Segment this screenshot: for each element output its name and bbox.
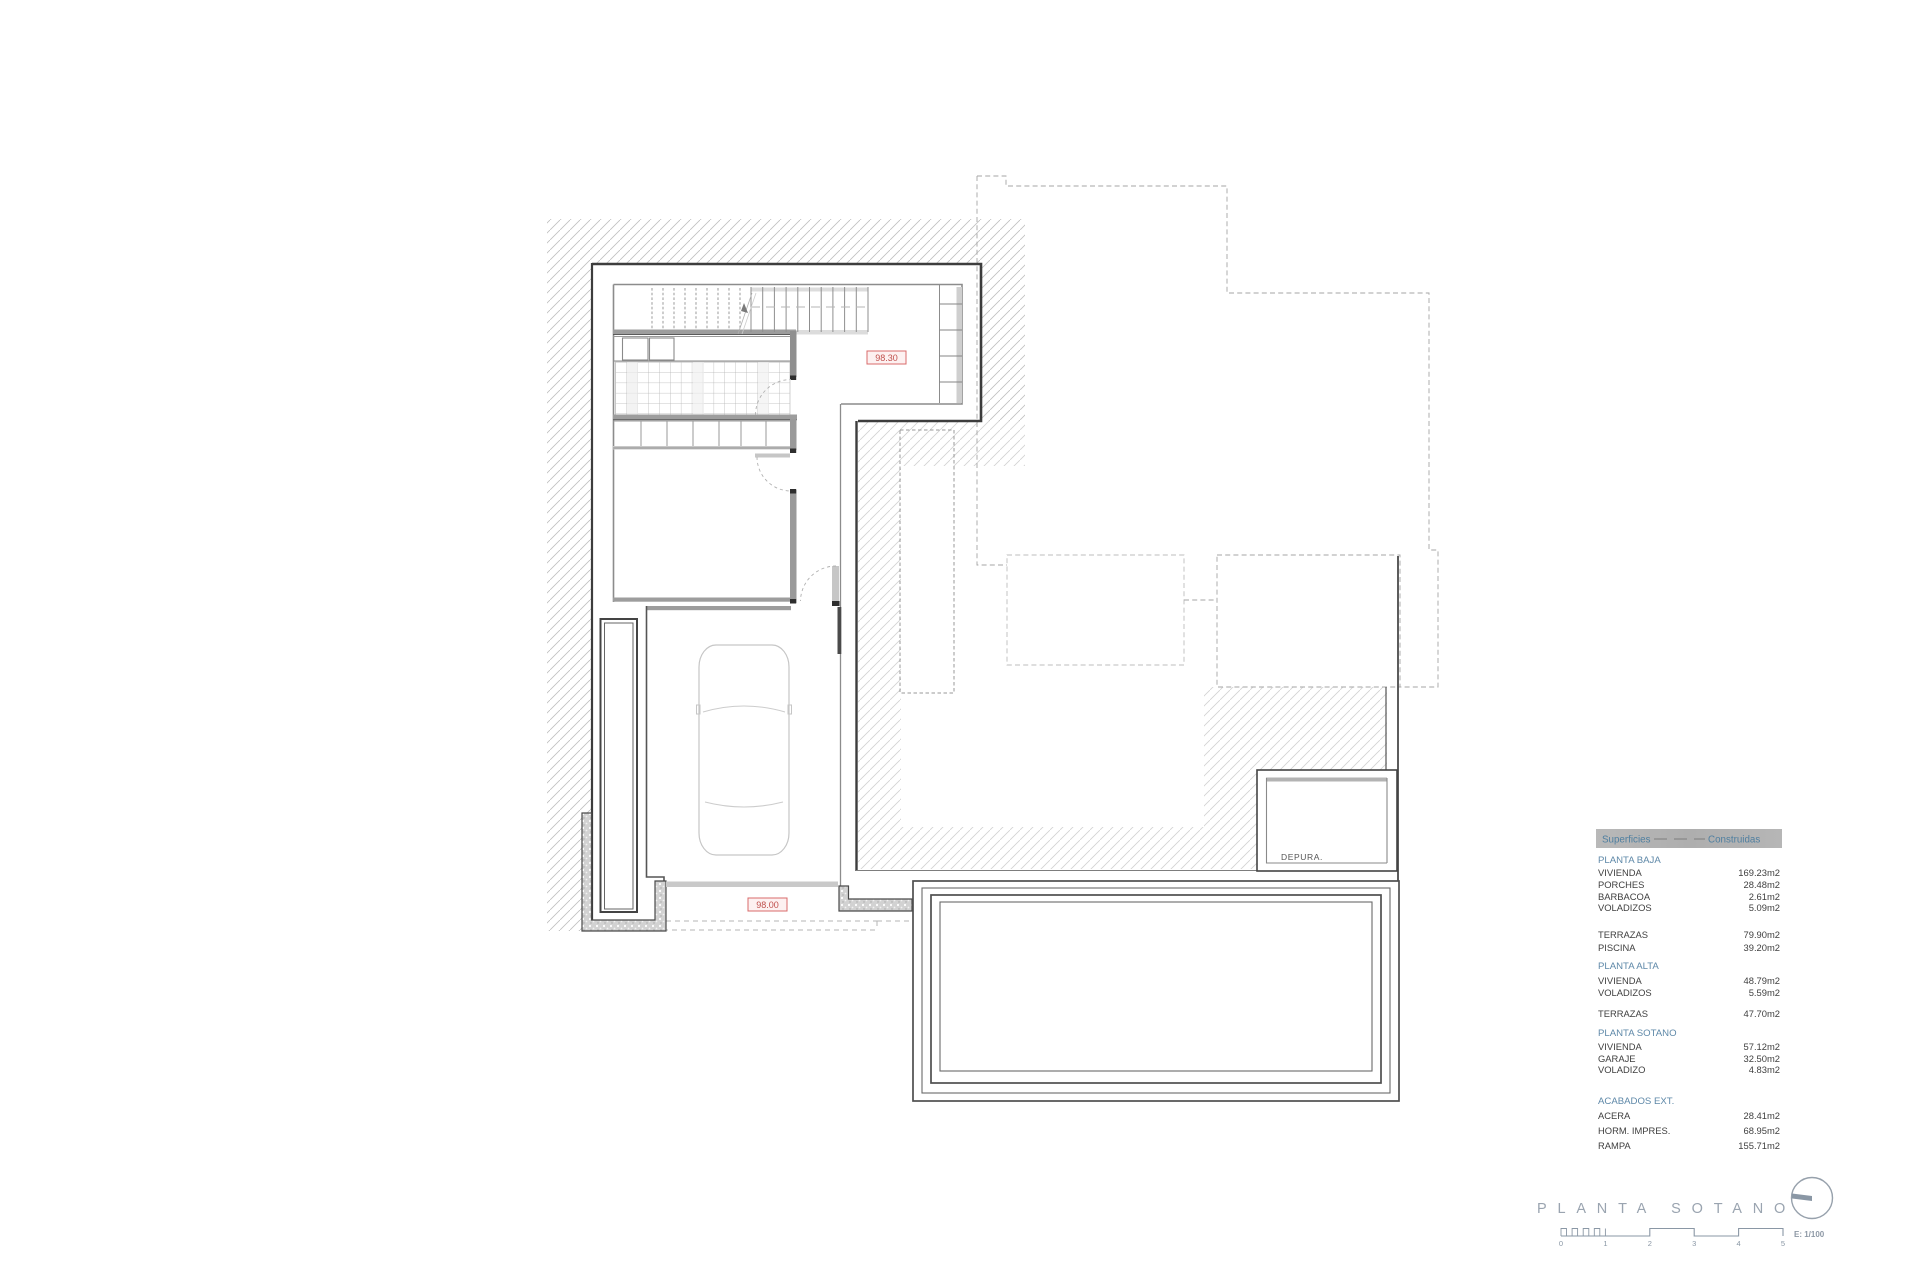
svg-text:PLANTA ALTA: PLANTA ALTA (1598, 961, 1659, 972)
svg-text:HORM. IMPRES.: HORM. IMPRES. (1598, 1125, 1670, 1136)
svg-text:155.71m2: 155.71m2 (1738, 1140, 1780, 1151)
svg-text:68.95m2: 68.95m2 (1744, 1125, 1780, 1136)
svg-text:98.30: 98.30 (875, 353, 898, 363)
svg-text:DEPURA.: DEPURA. (1281, 852, 1323, 862)
svg-text:57.12m2: 57.12m2 (1744, 1041, 1780, 1052)
svg-text:VIVIENDA: VIVIENDA (1598, 867, 1643, 878)
svg-text:2.61m2: 2.61m2 (1749, 891, 1780, 902)
svg-text:E: 1/100: E: 1/100 (1794, 1230, 1825, 1239)
svg-text:PLANTA SOTANO: PLANTA SOTANO (1598, 1028, 1677, 1039)
svg-text:GARAJE: GARAJE (1598, 1053, 1636, 1064)
svg-text:28.41m2: 28.41m2 (1744, 1110, 1780, 1121)
svg-text:PISCINA: PISCINA (1598, 942, 1636, 953)
svg-text:4: 4 (1737, 1239, 1741, 1248)
svg-text:5: 5 (1781, 1239, 1785, 1248)
svg-text:32.50m2: 32.50m2 (1744, 1053, 1780, 1064)
svg-text:PLANTA BAJA: PLANTA BAJA (1598, 855, 1661, 866)
svg-text:3: 3 (1692, 1239, 1696, 1248)
svg-text:BARBACOA: BARBACOA (1598, 891, 1651, 902)
svg-text:RAMPA: RAMPA (1598, 1140, 1631, 1151)
svg-text:PORCHES: PORCHES (1598, 879, 1644, 890)
svg-text:98.00: 98.00 (756, 900, 779, 910)
svg-text:PLANTA SOTANO: PLANTA SOTANO (1537, 1201, 1796, 1217)
svg-text:VOLADIZO: VOLADIZO (1598, 1064, 1645, 1075)
svg-text:0: 0 (1559, 1239, 1563, 1248)
svg-text:79.90m2: 79.90m2 (1744, 929, 1780, 940)
svg-text:TERRAZAS: TERRAZAS (1598, 1008, 1648, 1019)
svg-text:Construidas: Construidas (1708, 835, 1760, 846)
svg-text:ACERA: ACERA (1598, 1110, 1631, 1121)
svg-text:39.20m2: 39.20m2 (1744, 942, 1780, 953)
svg-text:TERRAZAS: TERRAZAS (1598, 929, 1648, 940)
svg-text:VOLADIZOS: VOLADIZOS (1598, 902, 1652, 913)
svg-text:28.48m2: 28.48m2 (1744, 879, 1780, 890)
svg-text:2: 2 (1648, 1239, 1652, 1248)
svg-text:5.09m2: 5.09m2 (1749, 902, 1780, 913)
svg-text:48.79m2: 48.79m2 (1744, 975, 1780, 986)
svg-text:169.23m2: 169.23m2 (1738, 867, 1780, 878)
svg-text:VIVIENDA: VIVIENDA (1598, 1041, 1643, 1052)
svg-text:5.59m2: 5.59m2 (1749, 987, 1780, 998)
svg-text:47.70m2: 47.70m2 (1744, 1008, 1780, 1019)
svg-text:VIVIENDA: VIVIENDA (1598, 975, 1643, 986)
svg-text:VOLADIZOS: VOLADIZOS (1598, 987, 1652, 998)
svg-text:4.83m2: 4.83m2 (1749, 1064, 1780, 1075)
svg-text:ACABADOS EXT.: ACABADOS EXT. (1598, 1096, 1674, 1107)
svg-text:1: 1 (1603, 1239, 1607, 1248)
svg-text:Superficies: Superficies (1602, 835, 1651, 846)
